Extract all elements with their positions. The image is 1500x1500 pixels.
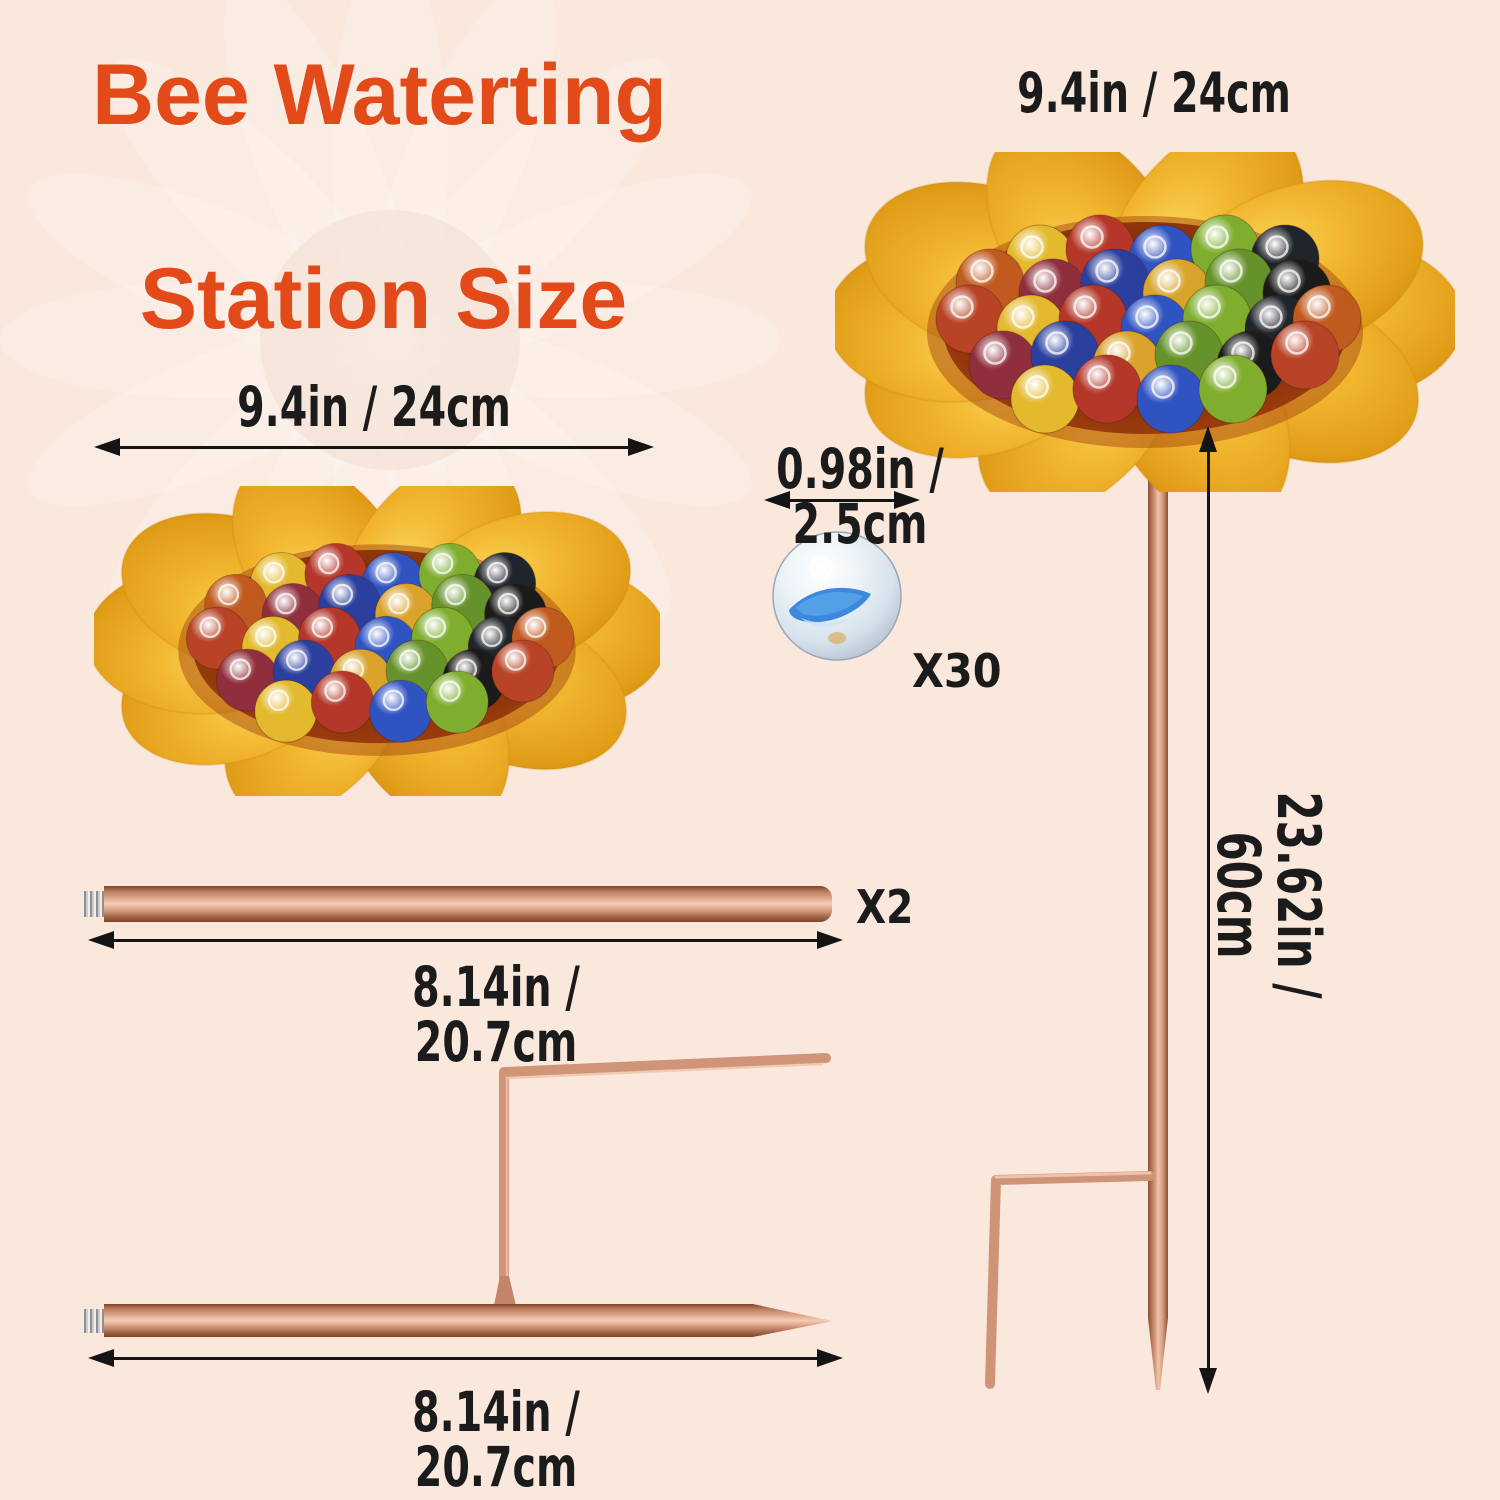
page-title-line1: Bee Waterting — [92, 47, 667, 143]
stake-step-wire-highlight — [507, 1064, 822, 1288]
height-arrow-up-icon — [1199, 426, 1217, 452]
dimension-label-top-dish: 9.4in / 24cm — [1010, 66, 1298, 121]
dimension-label-station-height: 23.62in / 60cm — [1208, 762, 1328, 1028]
height-arrow-down-icon — [1199, 1368, 1217, 1394]
station-step-wire-line — [990, 1176, 1150, 1384]
stake-step-wire — [492, 1048, 836, 1310]
marble-count-label: X30 — [912, 648, 1002, 694]
page-title: Bee Waterting Station Size — [92, 44, 667, 350]
stake-length-arrow — [114, 1357, 817, 1360]
left-dish-width-arrow — [120, 446, 628, 449]
height-arrow-line — [1207, 450, 1210, 1370]
dimension-label-left-dish: 9.4in / 24cm — [230, 380, 518, 435]
dimension-label-pole: 8.14in / 20.7cm — [352, 960, 640, 1070]
stake-step-wire-line — [504, 1058, 826, 1308]
page-title-line2: Station Size — [140, 251, 627, 347]
left-dish-image — [94, 486, 660, 796]
stake-thread-tip — [82, 1309, 106, 1333]
marble-width-arrow — [790, 499, 894, 502]
pole-length-arrow — [114, 939, 817, 942]
dimension-label-marble: 0.98in / 2.5cm — [716, 442, 1004, 552]
pole-thread-tip — [82, 891, 106, 917]
extension-pole-image — [104, 886, 832, 922]
ground-stake-image — [104, 1304, 833, 1337]
pole-count-label: X2 — [856, 884, 913, 930]
station-step-wire — [980, 1168, 1156, 1392]
marble-amber-spot — [828, 632, 846, 644]
dimension-label-stake: 8.14in / 20.7cm — [352, 1385, 640, 1495]
